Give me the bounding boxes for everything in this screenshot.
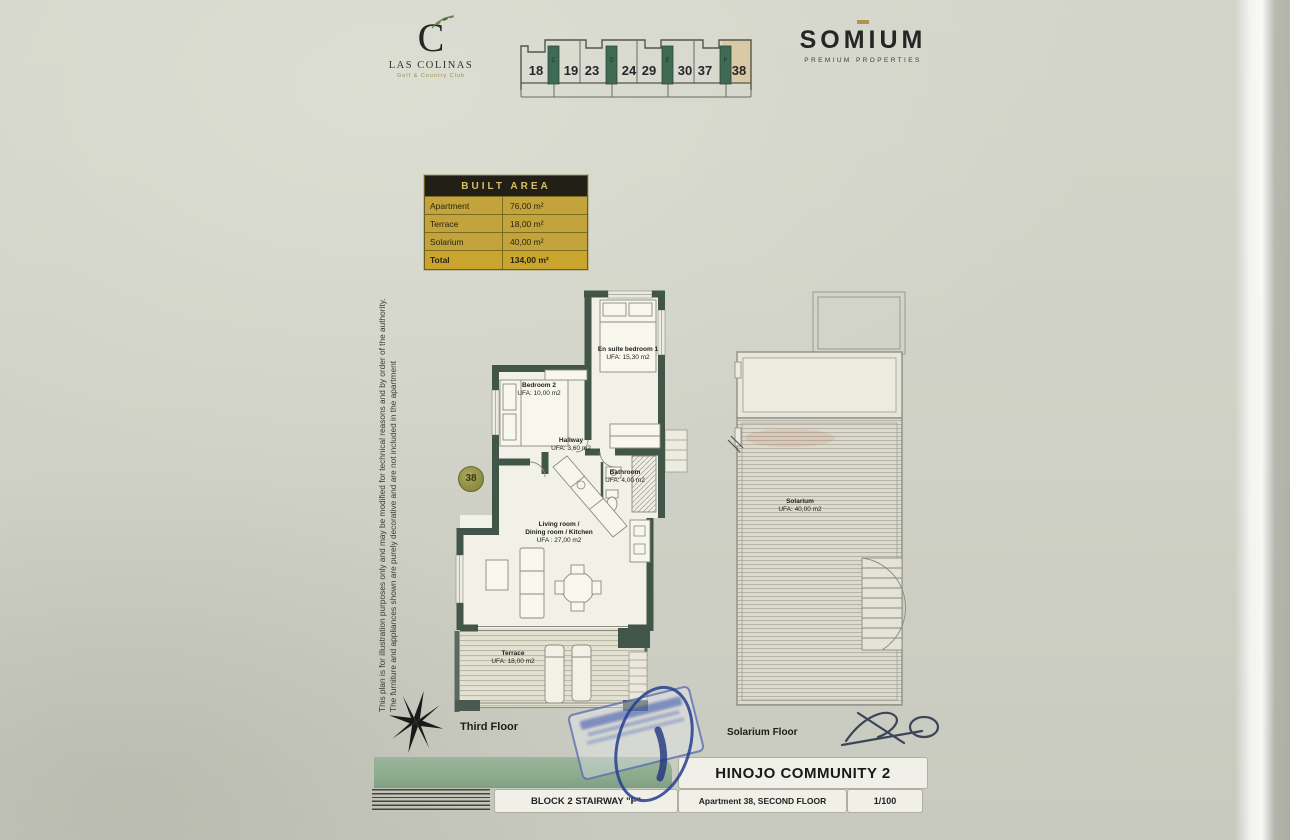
- dining-table: [562, 572, 594, 604]
- stairway-letter: C: [551, 58, 556, 64]
- las-colinas-logo: C LAS COLINAS Golf & Country Club: [386, 18, 476, 79]
- unit-number: 24: [622, 63, 637, 78]
- stairway-letter: F: [724, 58, 728, 64]
- somium-name: SOMIUM: [793, 26, 933, 55]
- disclaimer-text: This plan is for illustration purposes o…: [377, 330, 398, 712]
- exterior-landing: [665, 430, 687, 472]
- title-block-scale: 1/100: [847, 789, 923, 813]
- built-area-row-solarium: Solarium 40,00 m²: [425, 232, 587, 250]
- label-bedroom2: Bedroom 2 UFA: 10,00 m2: [503, 382, 575, 398]
- unit-number: 18: [529, 63, 543, 78]
- solarium-upper-room: [735, 352, 902, 418]
- label-solarium: Solarium UFA: 40,00 m2: [770, 498, 830, 514]
- label-living-room: Living room / Dining room / Kitchen UFA …: [523, 521, 595, 545]
- pergola-outline: [813, 292, 905, 354]
- las-colinas-name: LAS COLINAS: [386, 60, 476, 71]
- somium-brand-mark: [857, 20, 869, 24]
- label-hallway: Hallway UFA: 3,60 m2: [546, 437, 596, 453]
- scanned-floor-plan-document: C LAS COLINAS Golf & Country Club: [0, 0, 1290, 840]
- built-area-row-total: Total 134,00 m²: [425, 250, 587, 269]
- third-floor-caption: Third Floor: [460, 721, 518, 733]
- disclaimer-line-2: The furniture and appliances shown are p…: [388, 330, 399, 712]
- disclaimer-line-1: This plan is for illustration purposes o…: [377, 330, 388, 712]
- somium-subtitle: PREMIUM PROPERTIES: [793, 57, 933, 64]
- stairway-letter: D: [609, 58, 614, 64]
- title-block-community: HINOJO COMMUNITY 2: [678, 757, 928, 789]
- olive-branch-icon: [430, 14, 456, 30]
- unit-number: 29: [642, 63, 656, 78]
- built-area-title: BUILT AREA: [425, 176, 587, 196]
- pen-oval-scribble: [596, 682, 706, 812]
- stairway-letter: E: [665, 58, 669, 64]
- label-bedroom1: En suite bedroom 1 UFA: 15,30 m2: [588, 346, 668, 362]
- built-area-row-apartment: Apartment 76,00 m²: [425, 196, 587, 214]
- label-terrace: Terrace UFA: 18,00 m2: [484, 650, 542, 666]
- signature: [838, 703, 948, 755]
- wardrobe-bedroom1: [610, 424, 660, 448]
- unit-number: 23: [585, 63, 599, 78]
- built-area-row-terrace: Terrace 18,00 m²: [425, 214, 587, 232]
- footer-pinstripes: [372, 789, 490, 810]
- built-area-table: BUILT AREA Apartment 76,00 m² Terrace 18…: [424, 175, 588, 270]
- label-bathroom: Bathroom UFA: 4,00 m2: [598, 469, 652, 485]
- solarium-floor-caption: Solarium Floor: [727, 727, 798, 738]
- unit-number: 30: [678, 63, 692, 78]
- key-plan-diagram: C D E F 18 19 23 24 29 30 37 38: [515, 28, 759, 104]
- north-compass-icon: [385, 688, 447, 756]
- las-colinas-subtitle: Golf & Country Club: [386, 73, 476, 79]
- unit-number: 19: [564, 63, 578, 78]
- unit-38-badge: 38: [458, 466, 484, 492]
- unit-number: 37: [698, 63, 712, 78]
- somium-logo: SOMIUM PREMIUM PROPERTIES: [793, 20, 933, 64]
- unit-number: 38: [732, 63, 746, 78]
- solarium-stairs: [862, 558, 906, 650]
